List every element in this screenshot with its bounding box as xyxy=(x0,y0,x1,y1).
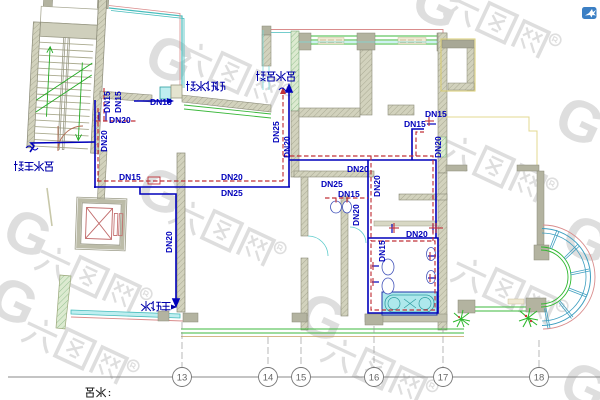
svg-text:DN15: DN15 xyxy=(425,109,447,119)
svg-text:DN15: DN15 xyxy=(102,91,112,113)
svg-text:DN20: DN20 xyxy=(406,229,428,239)
svg-text:DN20: DN20 xyxy=(372,175,382,197)
svg-text:DN20: DN20 xyxy=(351,204,361,226)
svg-text:18: 18 xyxy=(534,373,545,384)
svg-text:DN25: DN25 xyxy=(321,179,343,189)
svg-text:16: 16 xyxy=(369,373,380,384)
svg-text:DN15: DN15 xyxy=(113,91,123,113)
svg-text:DN15: DN15 xyxy=(119,172,141,182)
svg-text:DN25: DN25 xyxy=(221,188,243,198)
svg-text::: : xyxy=(108,388,111,398)
svg-text:DN15: DN15 xyxy=(150,97,172,107)
svg-text:DN15: DN15 xyxy=(377,240,387,262)
svg-text:14: 14 xyxy=(263,373,274,384)
svg-text:15: 15 xyxy=(296,373,307,384)
svg-text:DN20: DN20 xyxy=(347,164,369,174)
svg-text:17: 17 xyxy=(438,373,449,384)
svg-text:DN15: DN15 xyxy=(404,119,426,129)
svg-text:DN20: DN20 xyxy=(99,130,109,152)
svg-text:DN15: DN15 xyxy=(338,189,360,199)
svg-text:DN20: DN20 xyxy=(164,231,174,253)
svg-text:DN25: DN25 xyxy=(271,121,281,143)
svg-text:DN20: DN20 xyxy=(282,136,292,158)
svg-text:DN20: DN20 xyxy=(109,115,131,125)
svg-text:13: 13 xyxy=(177,373,188,384)
svg-text:DN20: DN20 xyxy=(221,172,243,182)
svg-text:DN20: DN20 xyxy=(433,136,443,158)
